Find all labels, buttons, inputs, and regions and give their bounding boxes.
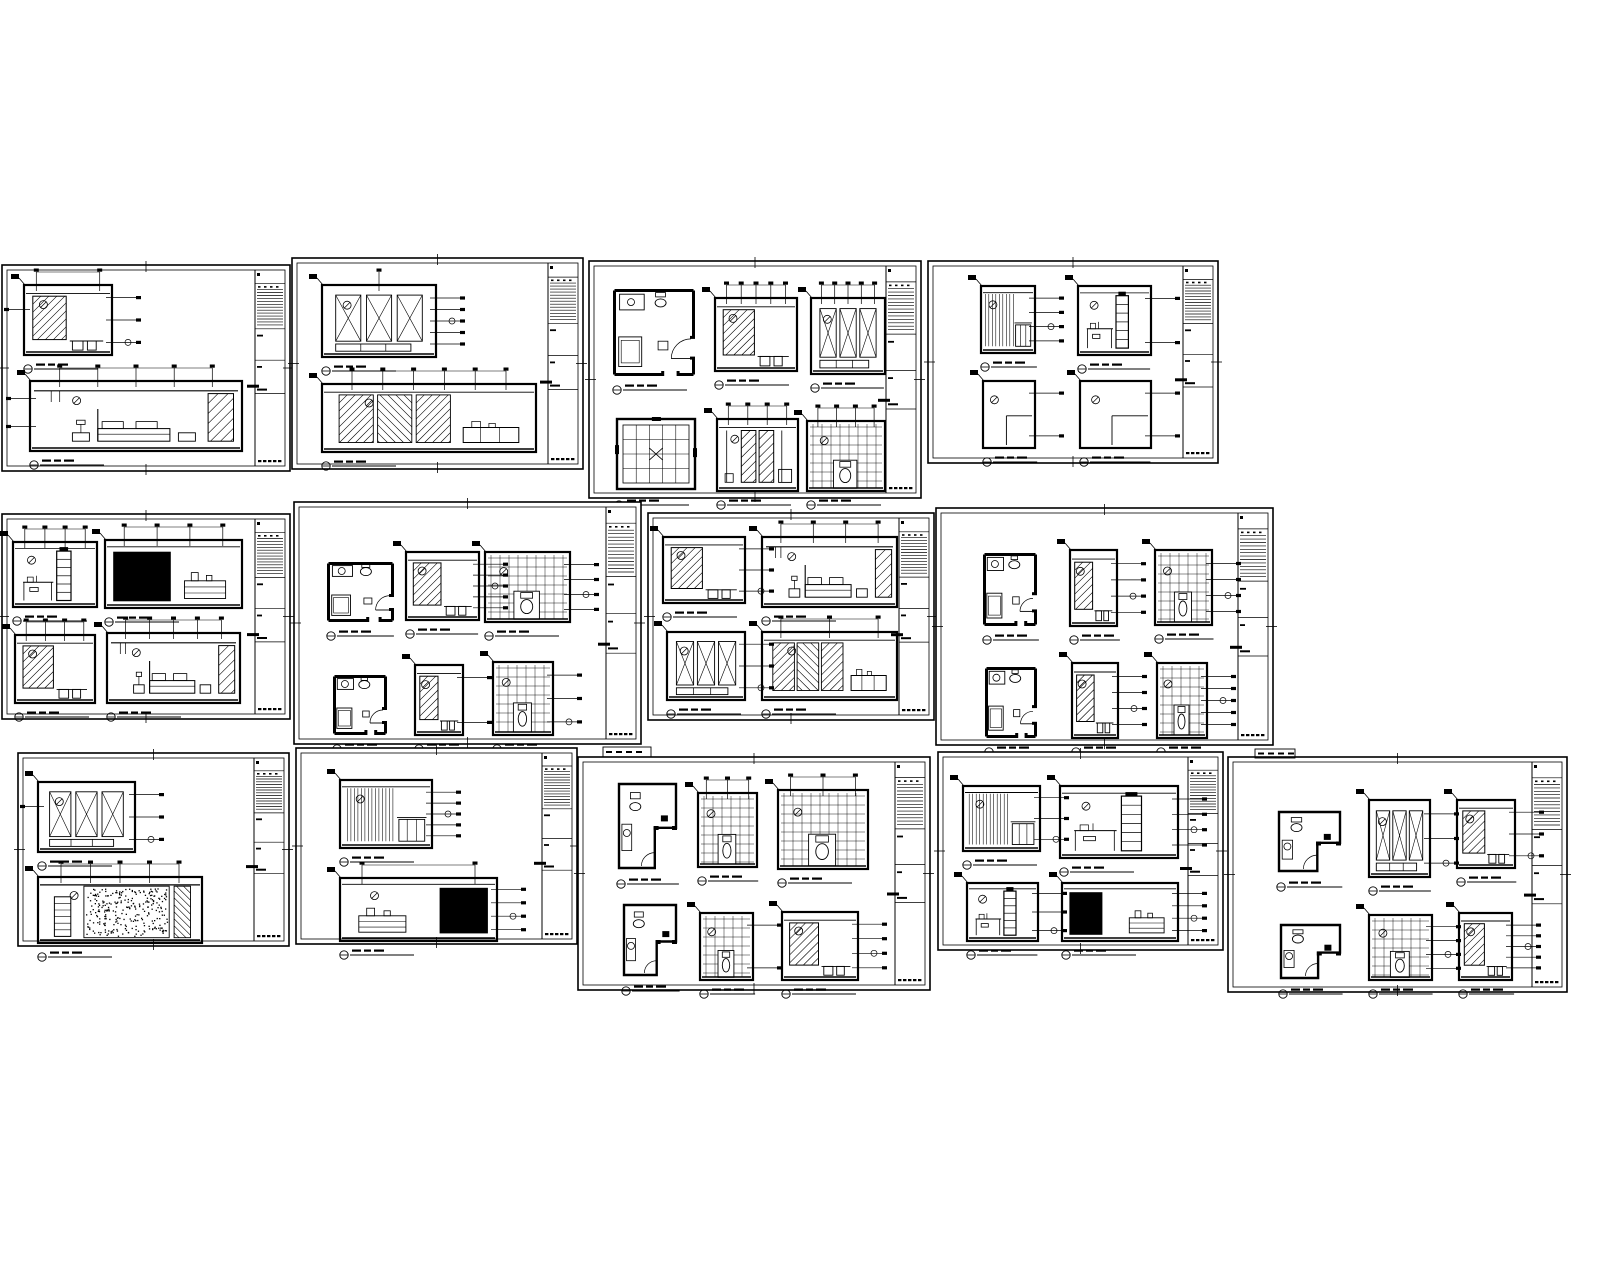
sheet-12	[934, 748, 1227, 959]
sheet-02	[288, 254, 587, 473]
sheet-11	[574, 753, 934, 998]
drawing-canvas	[0, 0, 1600, 1280]
figure-caption	[1062, 950, 1136, 960]
figure-caption	[717, 500, 791, 510]
figure-caption	[807, 500, 881, 510]
sheet-03	[585, 257, 925, 509]
cad-sheet-collage	[0, 0, 1600, 1280]
revision-stamp	[603, 747, 651, 757]
sheet-09	[14, 749, 293, 961]
sheet-13	[1224, 753, 1571, 998]
sheet-01	[0, 261, 294, 475]
sheet-06	[290, 498, 645, 753]
sheet-10	[292, 744, 581, 959]
figure-caption	[340, 950, 414, 960]
figure-caption	[967, 950, 1038, 960]
figure-caption	[38, 952, 112, 962]
sheet-08	[932, 504, 1277, 756]
sheet-04	[924, 257, 1222, 467]
sheet-07	[644, 509, 938, 724]
sheet-05	[0, 510, 294, 723]
